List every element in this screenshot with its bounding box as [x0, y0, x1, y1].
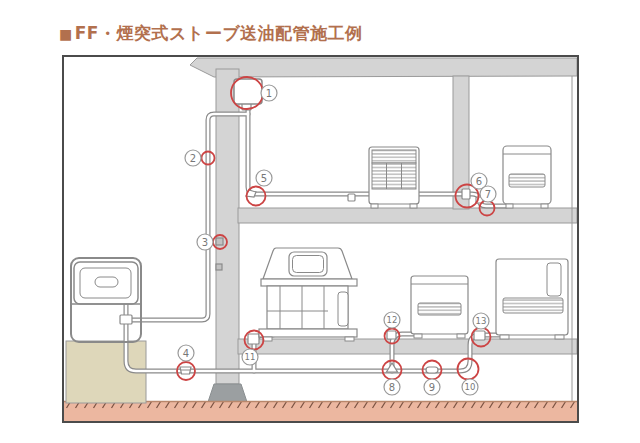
stove-1f-middle — [411, 276, 468, 338]
oil-tank — [71, 258, 141, 342]
fitting-11 — [248, 334, 259, 344]
number-label-4: 4 — [183, 348, 189, 359]
tee-2f-cap — [348, 194, 355, 201]
number-label-7: 7 — [485, 189, 491, 200]
pipe-bracket-mid — [216, 264, 222, 270]
roof-band — [190, 58, 577, 77]
oil-lifter-box — [234, 79, 262, 104]
number-label-11: 11 — [245, 352, 256, 362]
fitting-8-funnel — [387, 363, 398, 372]
number-label-10: 10 — [465, 382, 476, 392]
number-label-3: 3 — [202, 237, 208, 248]
number-label-1: 1 — [266, 88, 272, 99]
number-label-5: 5 — [261, 173, 267, 184]
stove-1f-left-big — [259, 248, 357, 341]
number-label-6: 6 — [476, 176, 482, 187]
number-label-13: 13 — [476, 316, 487, 326]
piping-diagram-frame: 12345678910111213 — [62, 55, 579, 423]
pipe-bracket-3 — [216, 238, 223, 245]
fitting-13 — [474, 331, 485, 340]
page-title: ■FF・煙突式ストーブ送油配管施工例 — [59, 22, 363, 45]
stove-2f-right — [503, 146, 551, 208]
ground — [64, 401, 577, 421]
marker-9: 9 — [423, 361, 442, 396]
stove-2f-left — [369, 147, 419, 208]
stove-1f-right — [496, 259, 568, 339]
wall-footing — [208, 384, 247, 402]
tank-gauge-window — [95, 277, 118, 287]
tank-tee-fitting — [120, 315, 132, 324]
number-label-8: 8 — [389, 382, 395, 393]
title-bullet-icon: ■ — [59, 26, 73, 42]
number-label-12: 12 — [387, 315, 398, 325]
valve-9-glyph — [426, 367, 438, 373]
number-label-2: 2 — [190, 153, 196, 164]
fitting-12 — [387, 331, 396, 339]
piping-diagram: 12345678910111213 — [64, 57, 577, 421]
second-floor-slab — [238, 208, 577, 223]
wall-sleeve-6 — [462, 189, 470, 199]
page-title-text: FF・煙突式ストーブ送油配管施工例 — [75, 23, 363, 43]
number-label-9: 9 — [429, 382, 435, 393]
first-floor-slab — [238, 339, 577, 354]
marker-4: 4 — [177, 345, 195, 380]
